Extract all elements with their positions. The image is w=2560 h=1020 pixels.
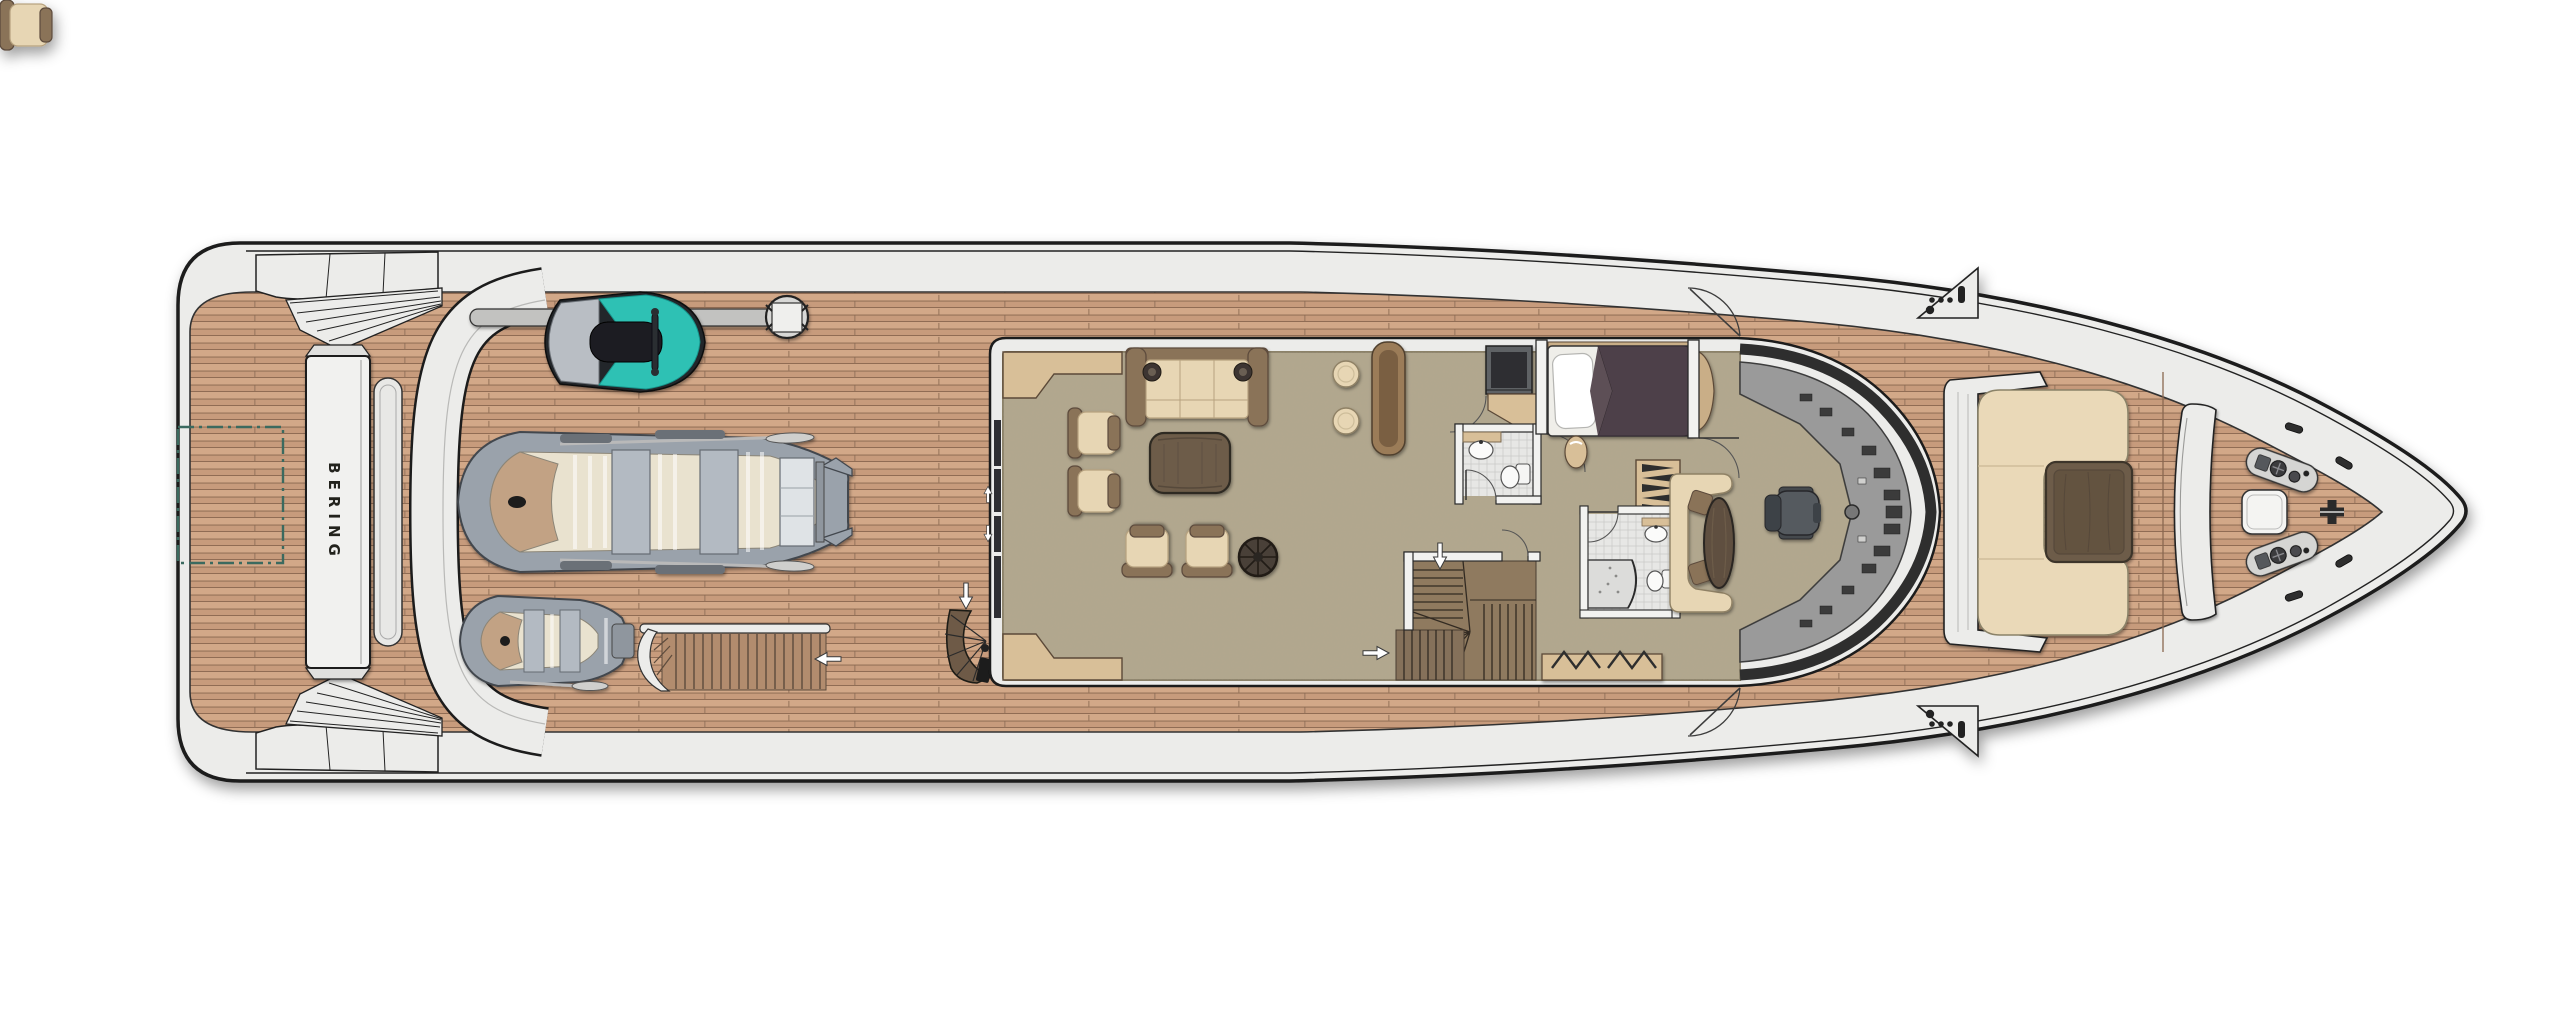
- duvet: [1598, 346, 1694, 436]
- nightstand: [1565, 436, 1587, 468]
- jet-ski: [545, 292, 705, 392]
- yacht-main-deck-plan: BERING: [0, 0, 2560, 1020]
- aft-deck-stairs: [638, 624, 841, 691]
- tv-cabinet: [1486, 346, 1532, 394]
- salon-coffee-table: [1150, 433, 1230, 493]
- bench-lifejackets: [1542, 652, 1662, 680]
- salon-armchair: [1122, 525, 1172, 577]
- pilothouse-wall: [1688, 340, 1699, 438]
- bar-stool: [1333, 361, 1359, 387]
- shower: [1588, 560, 1636, 608]
- foredeck-table: [2046, 462, 2132, 562]
- ensuite-bathroom: [1580, 506, 1680, 618]
- cabin-wall: [1536, 340, 1547, 434]
- ship-wheel-table: [1239, 538, 1277, 576]
- pilothouse-table: [1704, 498, 1734, 588]
- toilet: [1647, 570, 1673, 591]
- bar-counter: [1372, 342, 1405, 455]
- captain-chair: [1765, 487, 1821, 539]
- sink: [1469, 440, 1493, 459]
- deck-plan-drawing: BERING: [0, 0, 2560, 1020]
- passerelle-track: [374, 378, 402, 646]
- sink: [1645, 525, 1667, 542]
- transom-locker: BERING: [306, 345, 370, 679]
- salon-armchair: [1068, 466, 1120, 516]
- salon-sofa: [1126, 348, 1268, 426]
- hull: BERING: [0, 0, 2466, 781]
- salon-armchair: [1182, 525, 1232, 577]
- foredeck-lounge: [1944, 372, 2132, 652]
- bow-windscreen: [2175, 404, 2217, 620]
- bar-stool: [1333, 408, 1359, 434]
- toilet: [1501, 464, 1530, 488]
- brand-logo: BERING: [325, 462, 343, 562]
- day-head: [1455, 424, 1541, 504]
- bow-deck-hatch: [2242, 490, 2287, 534]
- salon-armchair: [1068, 408, 1120, 458]
- tender-large: [458, 430, 852, 574]
- vanity-counter: [1642, 518, 1674, 526]
- pillow: [1552, 353, 1596, 429]
